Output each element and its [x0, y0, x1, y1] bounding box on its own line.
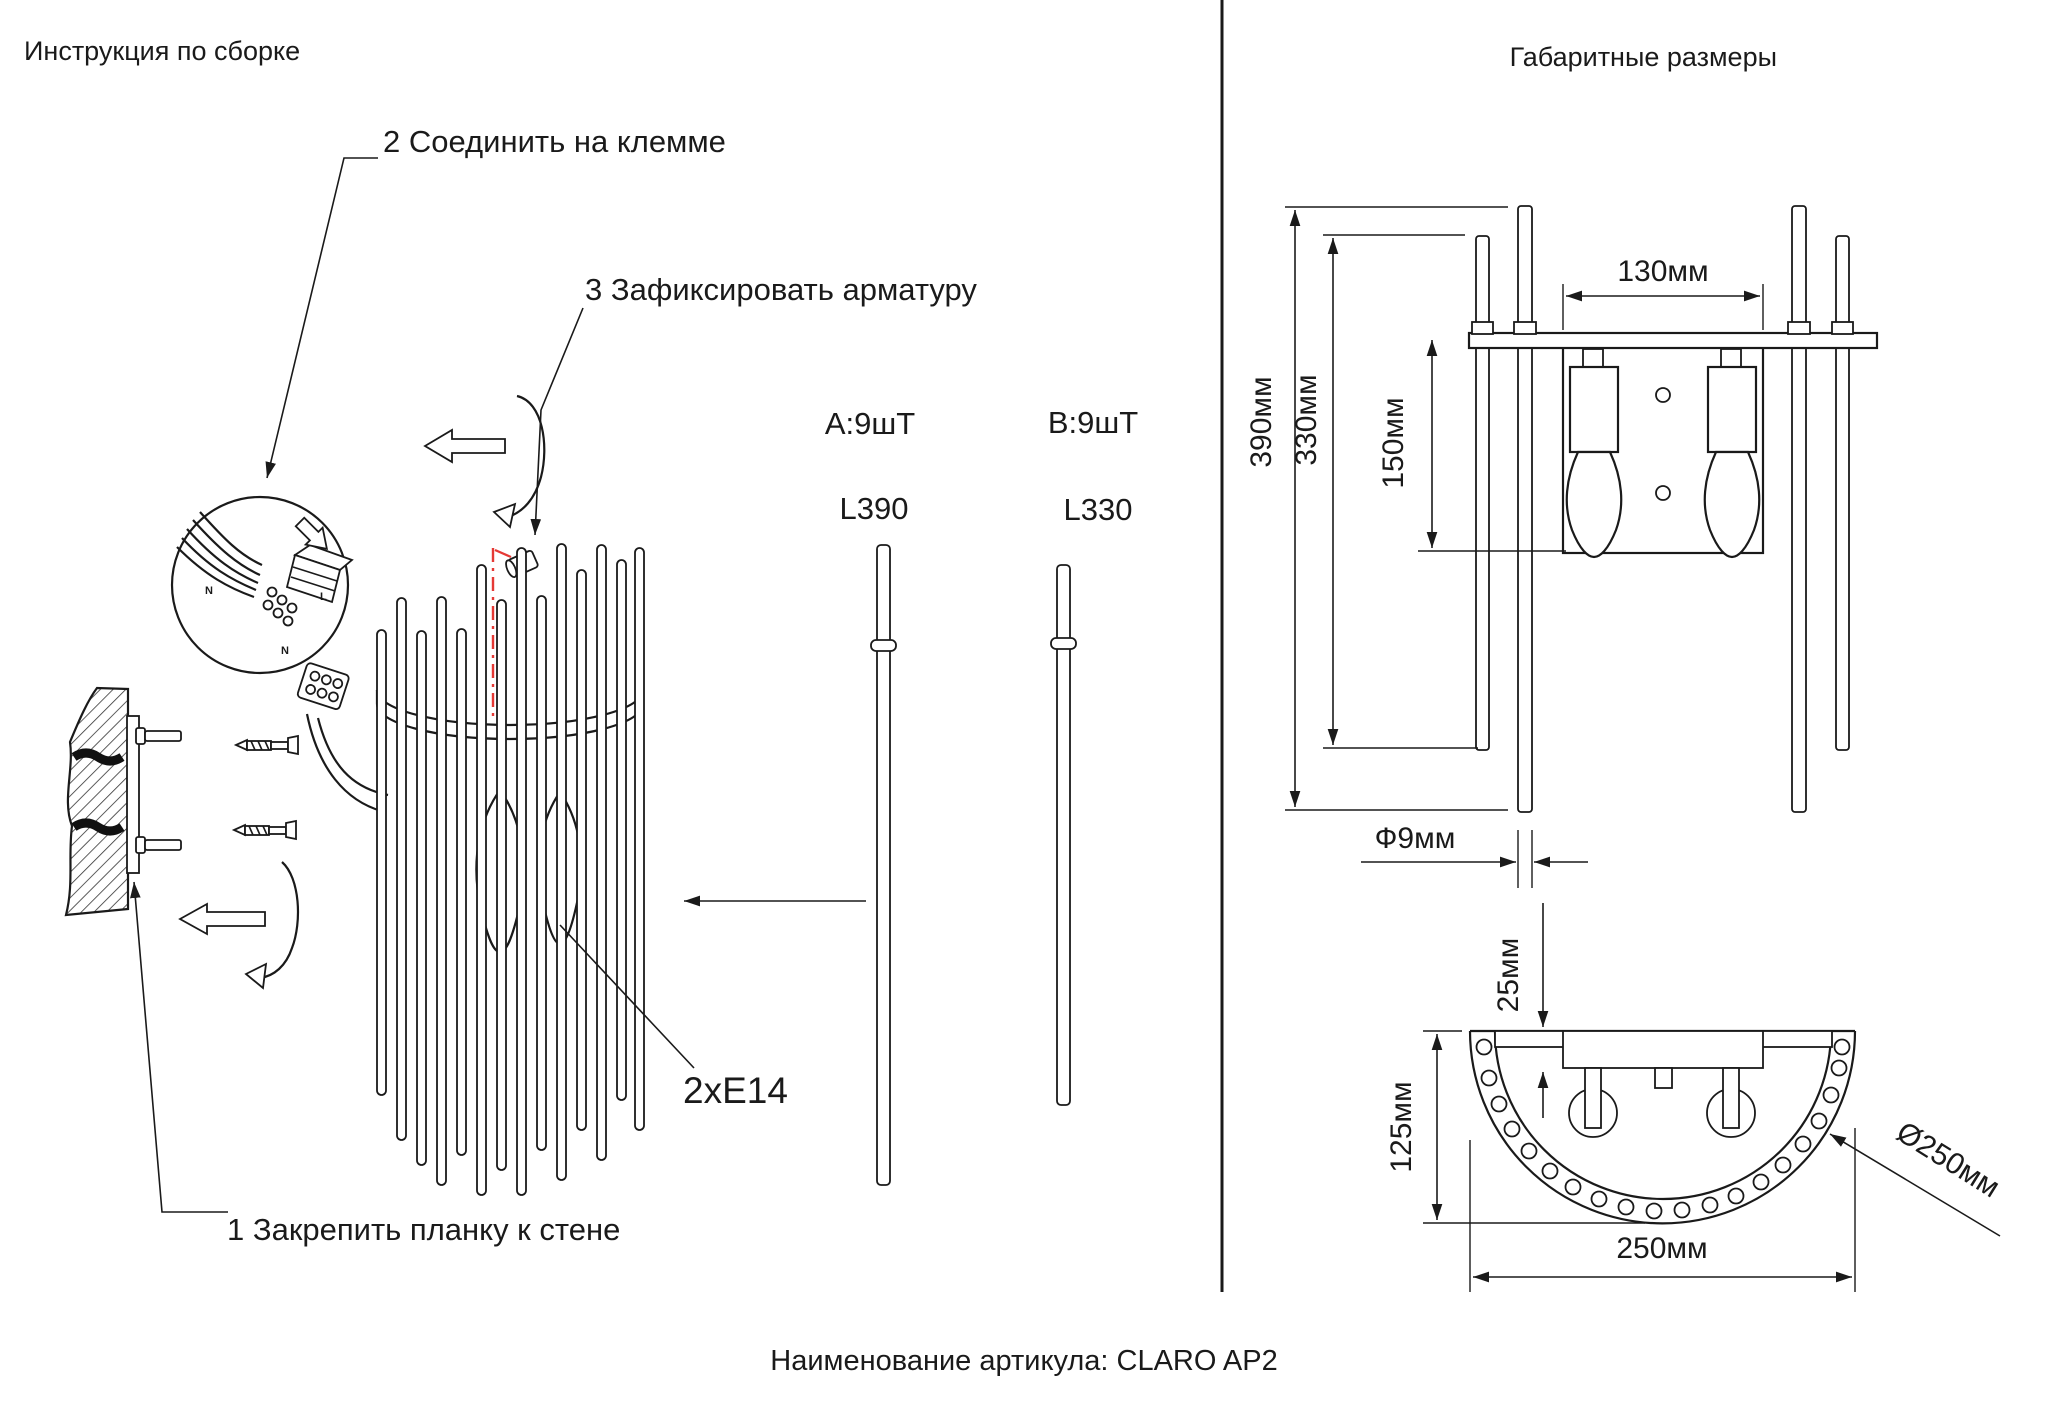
- front-rod-outer-left: [1476, 236, 1489, 750]
- technical-drawing: Инструкция по сборке 2 Соединить на клем…: [0, 0, 2048, 1413]
- wire-label-n2: N: [281, 645, 289, 657]
- rod-collar-2: [1514, 322, 1536, 334]
- dim-shade-diameter-label: Ø250мм: [1891, 1116, 2006, 1205]
- dim-width-label: 250мм: [1616, 1232, 1707, 1265]
- dim-plate-width-label: 130мм: [1617, 255, 1708, 288]
- dim-plate-width: 130мм: [1563, 255, 1763, 330]
- wall-section: [66, 688, 181, 915]
- step-1-label: 1 Закрепить планку к стене: [227, 1212, 620, 1247]
- rod-sample-a: [871, 545, 896, 1185]
- dim-total-height: 390мм: [1245, 207, 1508, 810]
- dim-rod-diameter: Ф9мм: [1361, 822, 1588, 888]
- rod-sample-b: [1051, 565, 1076, 1105]
- wall-lamp-assembly: [377, 544, 644, 1195]
- stud-bolt-1-icon: [136, 728, 181, 744]
- dim-rod-b-height: 330мм: [1290, 235, 1478, 748]
- screw-2-icon: [234, 821, 296, 839]
- dim-shade-diameter: Ø250мм: [1830, 1116, 2005, 1236]
- rod-collar-1: [1472, 322, 1493, 334]
- wire-label-l: L: [320, 591, 327, 603]
- lamp-wire-2: [307, 714, 385, 812]
- socket-left-body: [1570, 367, 1618, 452]
- front-rod-outer-right: [1836, 236, 1849, 750]
- fixation-red-link: [495, 550, 511, 557]
- dim-edge-offset-label: 25мм: [1492, 938, 1525, 1013]
- front-rod-inner-right: [1792, 206, 1806, 812]
- dim-rod-b-height-label: 330мм: [1290, 374, 1323, 465]
- instruction-sheet: Инструкция по сборке 2 Соединить на клем…: [0, 0, 2048, 1413]
- wire-ferrules: [264, 588, 297, 626]
- dim-plate-height: 150мм: [1377, 340, 1566, 551]
- step-1-leader-line: [134, 882, 228, 1212]
- step-3-label: 3 Зафиксировать арматуру: [585, 272, 977, 307]
- part-a-length-label: L390: [840, 491, 909, 526]
- push-left-arrow-wall-icon: [180, 904, 265, 934]
- dim-depth-label: 125мм: [1385, 1081, 1418, 1172]
- socket-type-label: 2хЕ14: [683, 1070, 788, 1111]
- top-view: [1470, 1031, 1855, 1223]
- dim-rod-diameter-label: Ф9мм: [1375, 822, 1456, 855]
- push-left-arrow-top-icon: [425, 430, 505, 462]
- socket-right-stem: [1723, 1068, 1739, 1128]
- part-a-qty-label: А:9шТ: [825, 406, 915, 441]
- part-b-length-label: L330: [1064, 492, 1133, 527]
- socket-right-tab: [1721, 349, 1741, 367]
- rod-collar-4: [1832, 322, 1853, 334]
- socket-right-body: [1708, 367, 1756, 452]
- front-view: [1469, 206, 1877, 812]
- screw-hole-bottom: [1656, 486, 1670, 500]
- backplate-top: [1563, 1031, 1763, 1068]
- mounting-bar-front: [1469, 333, 1877, 348]
- wall-hatch: [66, 688, 128, 915]
- screw-hole-top: [1656, 388, 1670, 402]
- wire-label-n1: N: [205, 585, 213, 597]
- wires-bundle: [177, 512, 262, 597]
- screw-1-icon: [236, 736, 298, 754]
- left-panel-title: Инструкция по сборке: [24, 36, 300, 66]
- socket-left-tab: [1583, 349, 1603, 367]
- right-panel-title: Габаритные размеры: [1510, 42, 1777, 72]
- socket-left-stem: [1585, 1068, 1601, 1128]
- step-2-label: 2 Соединить на клемме: [383, 124, 726, 159]
- connector-plug-icon: [297, 662, 388, 812]
- rod-collar-3: [1788, 322, 1810, 334]
- dim-plate-height-label: 150мм: [1377, 397, 1410, 488]
- stud-bolt-2-icon: [136, 837, 181, 853]
- dim-total-height-label: 390мм: [1245, 376, 1278, 467]
- step-2-leader-line: [267, 158, 378, 478]
- step-3-leader-line: [535, 308, 583, 535]
- part-b-qty-label: В:9шТ: [1048, 405, 1138, 440]
- front-rod-inner-left: [1518, 206, 1532, 812]
- article-caption: Наименование артикула: CLARO AP2: [770, 1345, 1277, 1377]
- terminal-detail-circle: N L N: [172, 497, 352, 673]
- lamp-rods-cage: [377, 544, 644, 1195]
- center-tab-top: [1655, 1068, 1672, 1088]
- dim-edge-offset: 25мм: [1492, 903, 1543, 1118]
